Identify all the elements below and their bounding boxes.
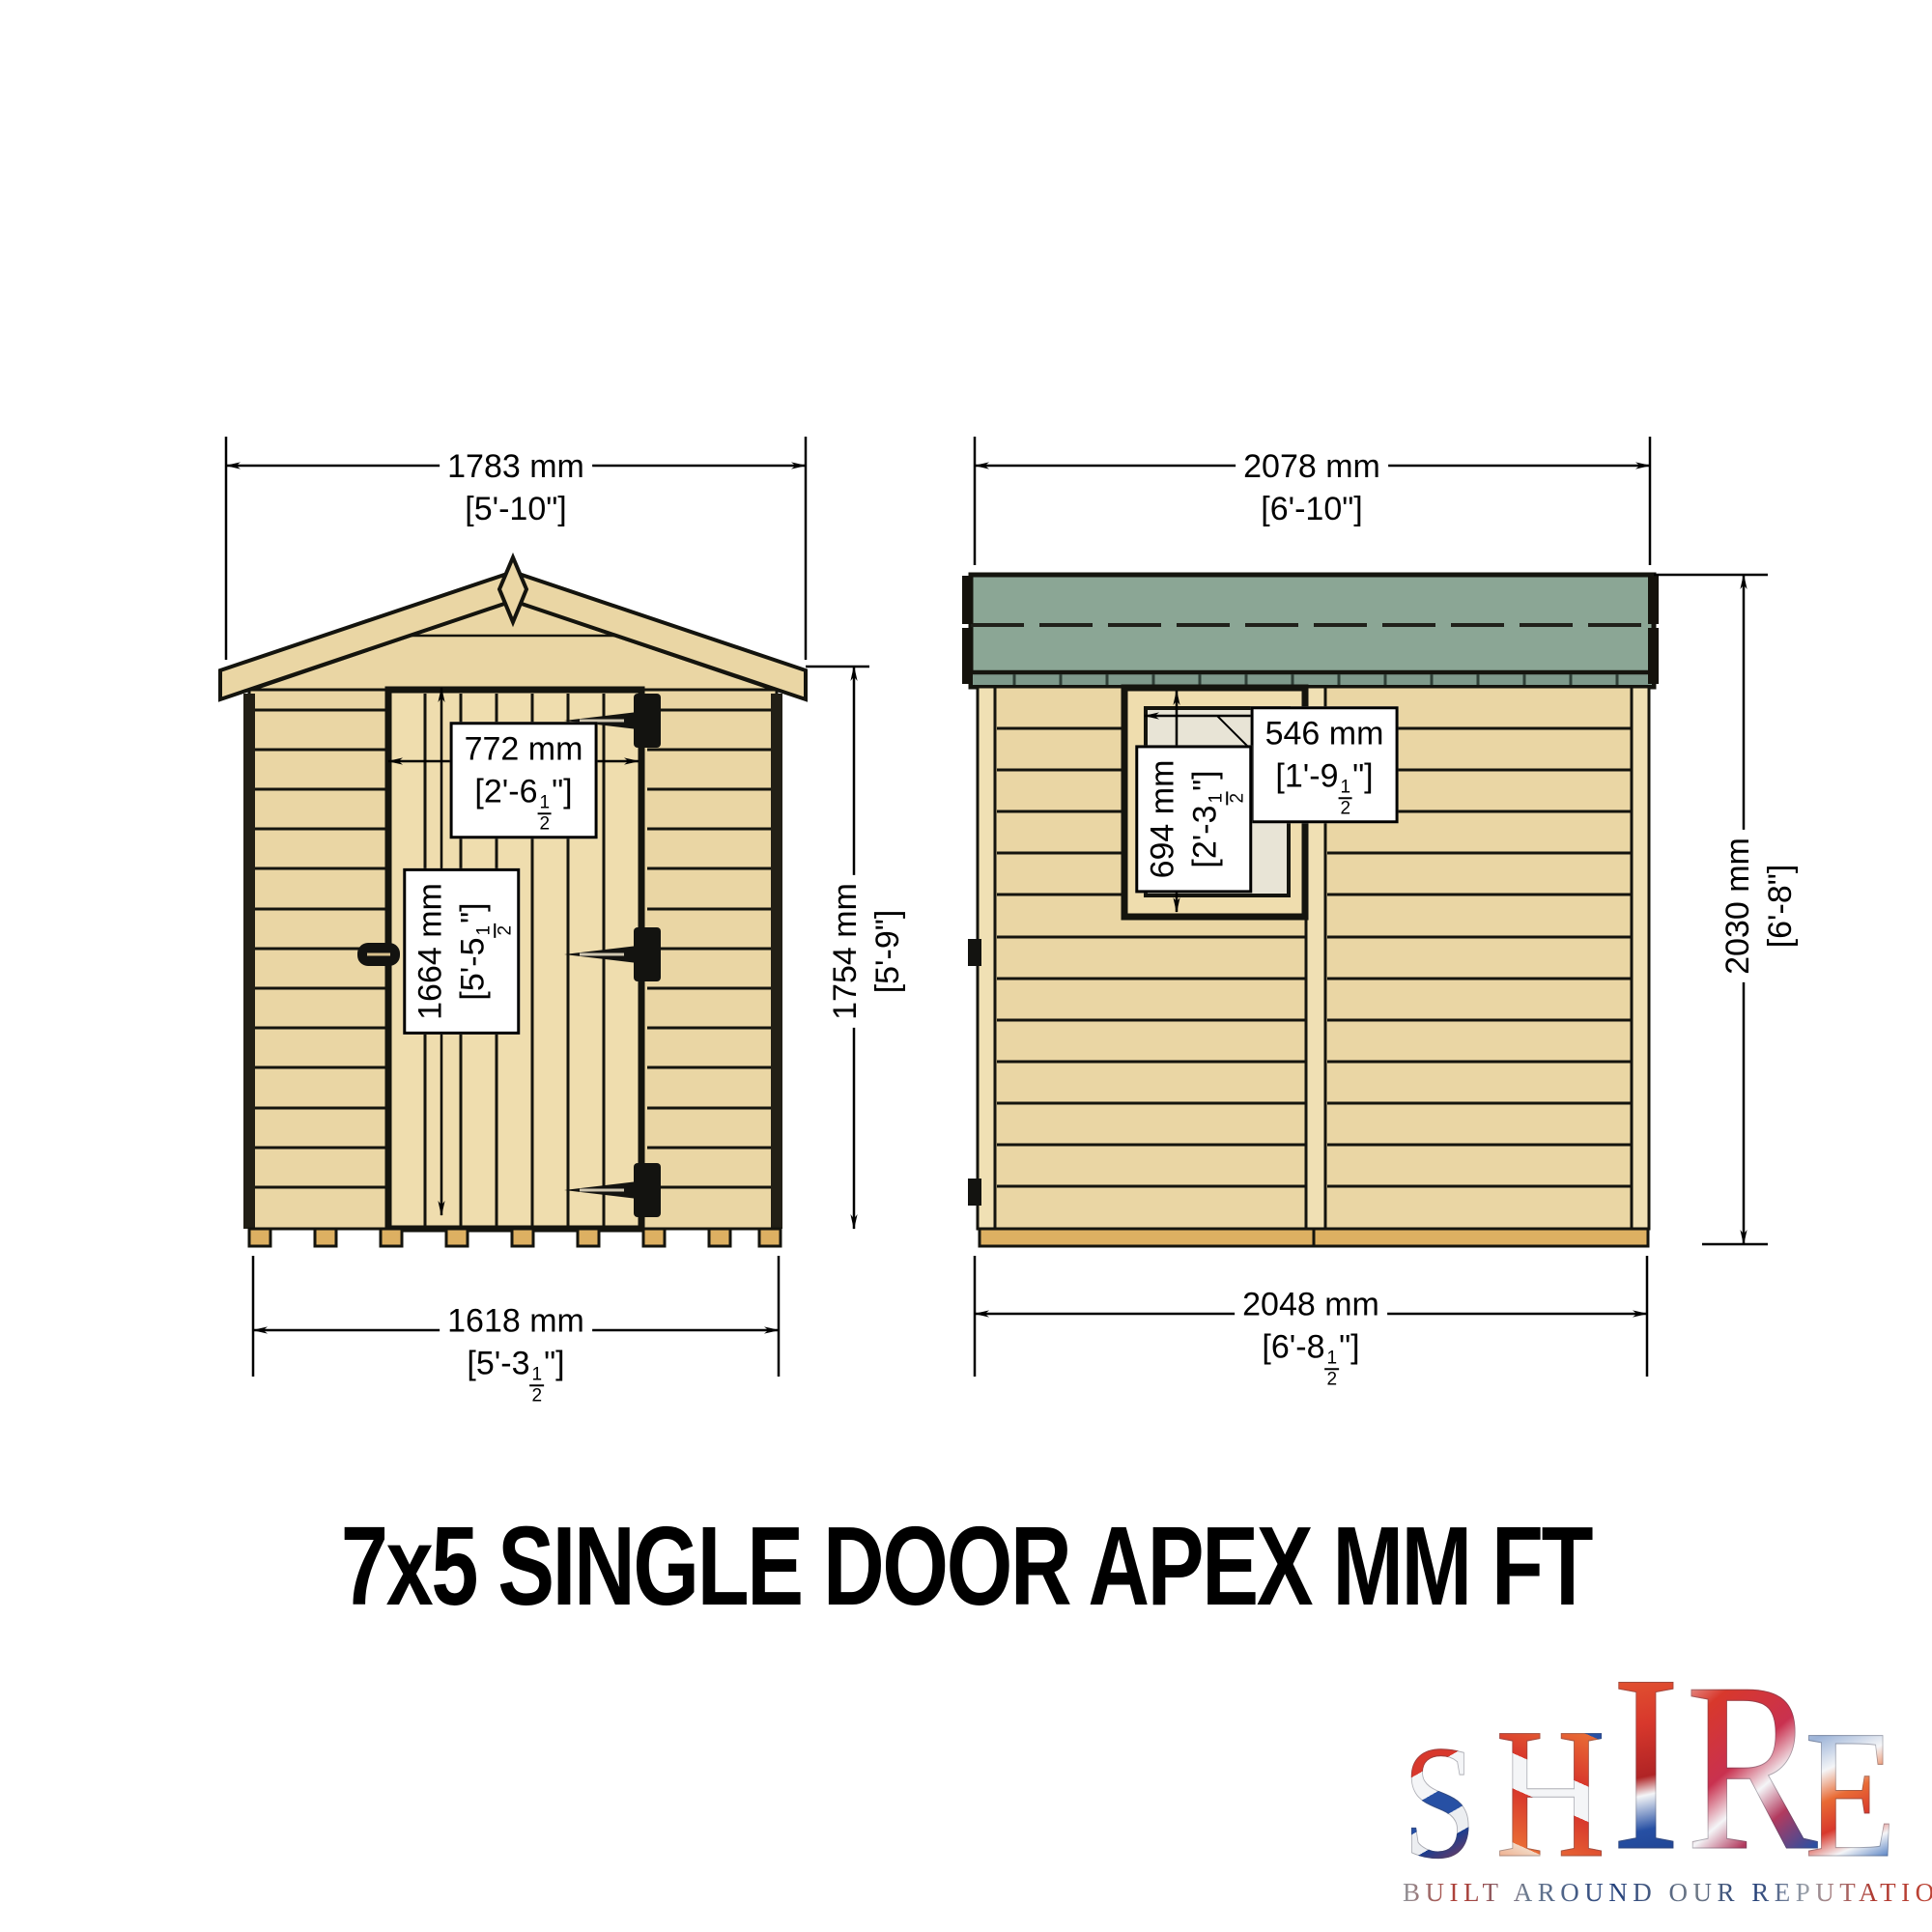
- dim-eaves-height: 1754 mm [5'-9"]: [824, 875, 909, 1028]
- dim-value-mm: 2048 mm: [1242, 1283, 1379, 1325]
- dim-side-base-length: 2048 mm [6'-812"]: [1235, 1283, 1387, 1388]
- roof-felt: [971, 575, 1654, 687]
- logo-letter-e: E: [1804, 1703, 1896, 1887]
- dim-roof-length: 2078 mm [6'-10"]: [1236, 445, 1388, 530]
- dim-value-mm: 1618 mm: [447, 1299, 584, 1342]
- shed-technical-drawing: 1783 mm [5'-10"] 2078 mm [6'-10"] 772 mm…: [0, 0, 1932, 1932]
- logo-letter-h: H: [1495, 1700, 1605, 1887]
- logo-letter-s: S: [1403, 1721, 1477, 1884]
- dim-front-base-width: 1618 mm [5'-312"]: [440, 1299, 592, 1405]
- dim-value-mm: 1664 mm: [409, 883, 451, 1020]
- dim-value-mm: 2030 mm: [1717, 838, 1759, 975]
- edge-hinge-mark: [968, 939, 981, 966]
- dim-value-ftin: [5'-512"]: [451, 883, 514, 1020]
- side-elevation: [962, 575, 1659, 1246]
- dim-value-mm: 546 mm: [1265, 712, 1384, 754]
- dim-door-height: 1664 mm [5'-512"]: [403, 868, 520, 1035]
- logo-tagline: BUILT AROUND OUR REPUTATION: [1403, 1878, 1932, 1908]
- dim-wall-height: 2030 mm [6'-8"]: [1717, 830, 1802, 982]
- logo-letter-i: I: [1611, 1636, 1681, 1889]
- edge-hinge-mark: [968, 1179, 981, 1206]
- dim-window-height: 694 mm [2'-312"]: [1135, 746, 1252, 894]
- hinge-plate-icon: [634, 1163, 661, 1217]
- dim-value-mm: 694 mm: [1141, 760, 1183, 879]
- dim-value-mm: 1783 mm: [447, 445, 584, 488]
- hinge-plate-icon: [634, 694, 661, 748]
- dim-value-ftin: [6'-8"]: [1759, 838, 1802, 975]
- dim-value-mm: 1754 mm: [824, 883, 867, 1020]
- logo-letter-r: R: [1686, 1647, 1818, 1889]
- dim-value-ftin: [5'-312"]: [447, 1342, 584, 1405]
- dim-value-mm: 2078 mm: [1243, 445, 1380, 488]
- dim-value-ftin: [6'-812"]: [1242, 1325, 1379, 1388]
- left-corner-trim: [243, 694, 255, 1229]
- side-right-corner-trim: [1632, 687, 1649, 1229]
- dim-value-ftin: [2'-612"]: [465, 770, 583, 833]
- drawing-title: 7x5 SINGLE DOOR APEX MM FT: [232, 1510, 1700, 1622]
- dim-value-mm: 772 mm: [465, 727, 583, 770]
- dim-value-ftin: [2'-312"]: [1183, 760, 1246, 879]
- dim-value-ftin: [5'-9"]: [867, 883, 909, 1020]
- dim-door-width: 772 mm [2'-612"]: [450, 722, 598, 838]
- dim-value-ftin: [6'-10"]: [1243, 488, 1380, 530]
- base-bearers: [249, 1229, 781, 1246]
- dim-window-width: 546 mm [1'-912"]: [1251, 706, 1399, 823]
- dim-value-ftin: [5'-10"]: [447, 488, 584, 530]
- dim-front-roof-width: 1783 mm [5'-10"]: [440, 445, 592, 530]
- hinge-plate-icon: [634, 927, 661, 981]
- right-corner-trim: [771, 694, 782, 1229]
- dim-value-ftin: [1'-912"]: [1265, 754, 1384, 817]
